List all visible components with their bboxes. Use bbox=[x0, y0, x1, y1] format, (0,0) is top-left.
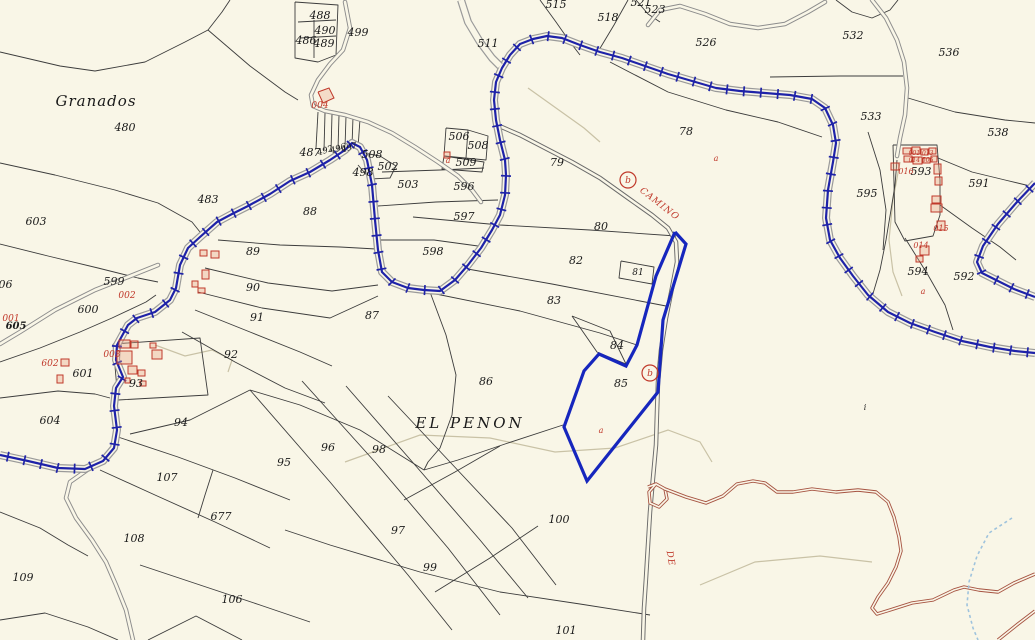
parcel-label-595: 595 bbox=[857, 187, 878, 200]
red-code-label: 014 505 bbox=[909, 157, 934, 164]
place-label: Granados bbox=[55, 92, 136, 110]
red-code-label: 002 bbox=[118, 291, 135, 301]
red-code-label: 016 bbox=[898, 167, 913, 176]
parcel-label-606: 606 bbox=[0, 278, 13, 291]
parcel-label-93: 93 bbox=[129, 377, 143, 390]
railway-tick bbox=[372, 235, 382, 236]
parcel-label-483: 483 bbox=[197, 193, 219, 206]
parcel-label-600: 600 bbox=[78, 303, 99, 316]
parcel-label-533: 533 bbox=[861, 110, 882, 123]
railway-tick bbox=[1027, 347, 1028, 357]
parcel-label-677: 677 bbox=[211, 510, 232, 523]
parcel-label-81: 81 bbox=[632, 268, 643, 278]
parcel-label-596: 596 bbox=[454, 180, 475, 193]
building-footprint bbox=[200, 250, 207, 256]
parcel-label-593: 593 bbox=[911, 165, 932, 178]
parcel-label-592: 592 bbox=[954, 270, 975, 283]
parcel-label-79: 79 bbox=[550, 156, 564, 169]
parcel-label-106: 106 bbox=[222, 593, 243, 606]
building-footprint bbox=[202, 270, 209, 279]
red-code-label: 003 bbox=[103, 350, 120, 360]
letter-marker-a: a bbox=[446, 156, 451, 165]
parcel-label-532: 532 bbox=[843, 29, 864, 42]
railway-tick bbox=[424, 285, 425, 295]
parcel-label-508: 508 bbox=[468, 139, 489, 152]
parcel-label-88: 88 bbox=[303, 205, 317, 218]
parcel-label-101: 101 bbox=[556, 624, 577, 637]
railway-tick bbox=[110, 393, 120, 394]
parcel-label-108: 108 bbox=[124, 532, 145, 545]
parcel-label-94: 94 bbox=[174, 416, 188, 429]
parcel-label-83: 83 bbox=[547, 294, 561, 307]
railway-tick bbox=[368, 201, 378, 202]
parcel-label-511: 511 bbox=[478, 37, 499, 50]
parcel-label-92: 92 bbox=[224, 348, 238, 361]
parcel-label-591: 591 bbox=[969, 177, 990, 190]
parcel-label-100: 100 bbox=[549, 513, 570, 526]
parcel-label-499: 499 bbox=[347, 26, 369, 39]
building-footprint bbox=[57, 375, 63, 383]
red-code-label: 014 bbox=[913, 241, 928, 250]
building-footprint bbox=[131, 341, 138, 348]
parcel-label-80: 80 bbox=[594, 220, 608, 233]
parcel-label-526: 526 bbox=[696, 36, 717, 49]
building-footprint bbox=[150, 343, 156, 348]
railway-tick bbox=[490, 92, 500, 93]
building-footprint bbox=[211, 251, 219, 258]
red-code-label: 004 bbox=[311, 101, 328, 111]
building-footprint bbox=[138, 370, 145, 376]
railway-tick bbox=[370, 218, 380, 219]
parcel-label-85: 85 bbox=[614, 377, 628, 390]
parcel-label-603: 603 bbox=[26, 215, 47, 228]
parcel-label-86: 86 bbox=[479, 375, 493, 388]
letter-marker-a: a bbox=[599, 426, 604, 435]
red-code-label: 015 bbox=[933, 224, 948, 233]
parcel-label-97: 97 bbox=[391, 524, 405, 537]
red-code-label: 602 bbox=[41, 359, 58, 369]
parcel-label-523: 523 bbox=[645, 3, 666, 16]
parcel-label-490: 490 bbox=[314, 24, 336, 37]
parcel-label-509: 509 bbox=[456, 156, 477, 169]
parcel-label-90: 90 bbox=[246, 281, 260, 294]
parcel-label-99: 99 bbox=[423, 561, 437, 574]
parcel-label-536: 536 bbox=[939, 46, 960, 59]
parcel-label-601: 601 bbox=[73, 367, 94, 380]
parcel-label-91: 91 bbox=[250, 311, 264, 324]
parcel-label-480: 480 bbox=[114, 121, 136, 134]
parcel-label-87: 87 bbox=[365, 309, 379, 322]
parcel-label-594: 594 bbox=[908, 265, 929, 278]
building-footprint bbox=[152, 350, 162, 359]
building-footprint bbox=[916, 256, 923, 262]
railway-tick bbox=[822, 207, 832, 208]
letter-marker-a: a bbox=[714, 154, 719, 163]
parcel-label-502: 502 bbox=[378, 160, 399, 173]
red-code-label: 001 bbox=[2, 314, 19, 324]
cadastral-map: GranadosEL PENON480488490486489499487492… bbox=[0, 0, 1035, 640]
railway-tick bbox=[760, 88, 761, 98]
parcel-label-107: 107 bbox=[157, 471, 178, 484]
map-background bbox=[0, 0, 1035, 640]
parcel-label-604: 604 bbox=[40, 414, 61, 427]
parcel-label-78: 78 bbox=[679, 125, 693, 138]
railway-tick bbox=[743, 86, 744, 96]
parcel-label-506: 506 bbox=[449, 130, 470, 143]
parcel-label-538: 538 bbox=[988, 126, 1009, 139]
parcel-label-597: 597 bbox=[454, 210, 475, 223]
railway-tick bbox=[777, 89, 778, 99]
building-footprint bbox=[128, 366, 137, 374]
place-label: EL PENON bbox=[414, 414, 524, 432]
parcel-label-84: 84 bbox=[610, 339, 624, 352]
parcel-label-109: 109 bbox=[13, 571, 34, 584]
railway-tick bbox=[490, 109, 500, 110]
circled-marker-b: b bbox=[647, 369, 653, 379]
parcel-label-503: 503 bbox=[398, 178, 419, 191]
building-footprint bbox=[934, 164, 941, 174]
building-footprint bbox=[119, 340, 130, 348]
parcel-label-515: 515 bbox=[546, 0, 567, 11]
parcel-label-498: 498 bbox=[352, 166, 374, 179]
letter-marker-a: a bbox=[921, 287, 926, 296]
parcel-label-89: 89 bbox=[246, 245, 260, 258]
parcel-label-98: 98 bbox=[372, 443, 386, 456]
building-footprint bbox=[192, 281, 198, 287]
circled-marker-b: b bbox=[625, 176, 631, 186]
building-footprint bbox=[198, 288, 205, 293]
parcel-label-598: 598 bbox=[423, 245, 444, 258]
red-code-label: 001 013 bbox=[909, 150, 934, 157]
building-footprint bbox=[61, 359, 69, 366]
parcel-label-i: i bbox=[864, 403, 867, 412]
building-footprint bbox=[931, 204, 942, 212]
railway-tick bbox=[823, 191, 833, 192]
parcel-label-518: 518 bbox=[598, 11, 619, 24]
parcel-label-96: 96 bbox=[321, 441, 335, 454]
parcel-label-489: 489 bbox=[313, 37, 335, 50]
building-footprint bbox=[932, 196, 941, 203]
parcel-label-488: 488 bbox=[309, 9, 331, 22]
building-footprint bbox=[935, 177, 942, 185]
parcel-label-599: 599 bbox=[104, 275, 125, 288]
parcel-label-95: 95 bbox=[277, 456, 291, 469]
parcel-label-82: 82 bbox=[569, 254, 583, 267]
map-canvas[interactable]: GranadosEL PENON480488490486489499487492… bbox=[0, 0, 1035, 640]
